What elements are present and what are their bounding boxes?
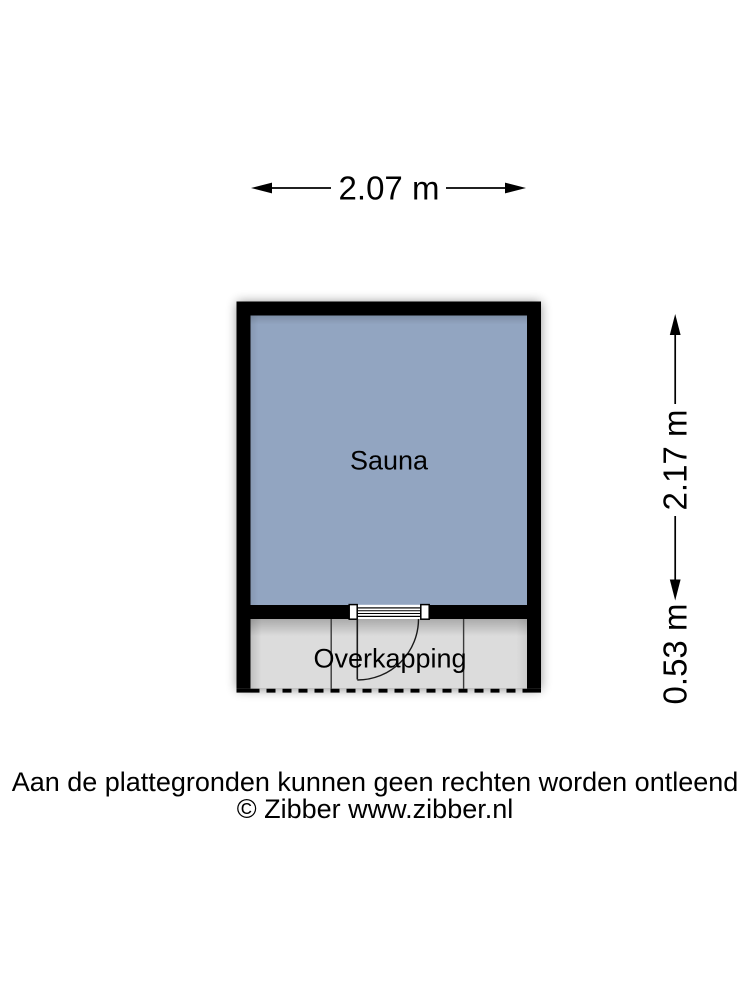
svg-text:© Zibber www.zibber.nl: © Zibber www.zibber.nl	[237, 794, 514, 824]
svg-text:Aan de plattegronden kunnen ge: Aan de plattegronden kunnen geen rechten…	[12, 767, 739, 797]
svg-text:0.53 m: 0.53 m	[657, 604, 694, 705]
svg-text:Sauna: Sauna	[350, 446, 429, 476]
svg-text:2.07 m: 2.07 m	[339, 170, 440, 207]
svg-text:2.17 m: 2.17 m	[657, 410, 694, 511]
svg-text:Overkapping: Overkapping	[313, 644, 466, 674]
